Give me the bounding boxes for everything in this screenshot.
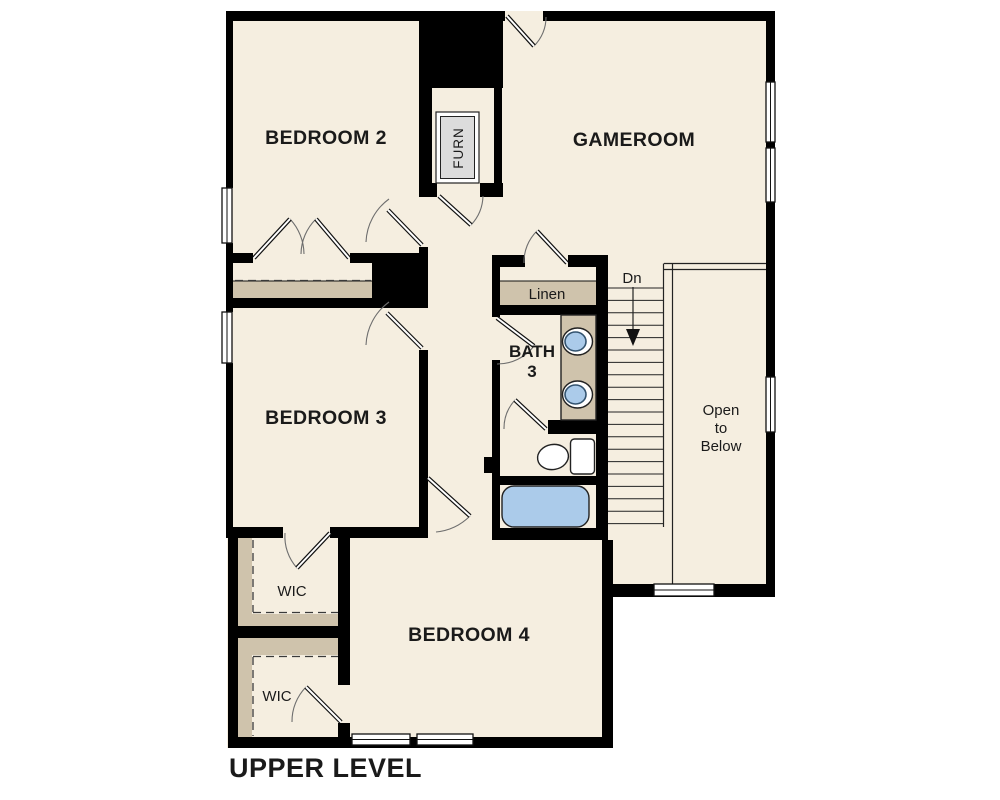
bathtub <box>502 486 589 527</box>
bedroom2-window <box>222 188 232 243</box>
bedroom3-window <box>222 312 232 363</box>
stair-landing-window <box>654 584 714 596</box>
open-to-below-label-line1: Open <box>703 402 740 419</box>
gameroom-window-upper <box>766 82 775 142</box>
bath3-label-line2: 3 <box>527 362 536 381</box>
bedroom4-window-right <box>417 734 473 745</box>
wic-upper-shelf-bottom <box>238 614 338 627</box>
wic-lower-label: WIC <box>262 688 291 705</box>
furnace-unit: FURN <box>436 112 479 183</box>
open-to-below-window <box>766 377 775 432</box>
sink-2 <box>563 381 593 408</box>
bedroom4-window-left <box>352 734 410 745</box>
furnace-label: FURN <box>451 127 466 169</box>
open-to-below-label-line2: to <box>715 420 728 437</box>
linen-label: Linen <box>529 286 566 303</box>
floor-plan-page: FURN BEDROOM 2 GAMEROOM BEDROOM 3 BEDROO… <box>0 0 1000 800</box>
stair-direction-label: Dn <box>622 270 641 287</box>
floor-plan-drawing: FURN BEDROOM 2 GAMEROOM BEDROOM 3 BEDROO… <box>0 0 1000 800</box>
plan-title: UPPER LEVEL <box>229 753 422 783</box>
wic-lower-shelf-top <box>238 638 338 655</box>
wic-upper-shelf-left <box>238 538 252 627</box>
bath3-label-line1: BATH <box>509 342 555 361</box>
sink-1 <box>563 328 593 355</box>
open-to-below-label-line3: Below <box>701 438 742 455</box>
bedroom3-label: BEDROOM 3 <box>265 407 387 429</box>
wic-upper-label: WIC <box>277 583 306 600</box>
bedroom4-label: BEDROOM 4 <box>408 624 530 646</box>
gameroom-label: GAMEROOM <box>573 129 695 151</box>
bedroom2-label: BEDROOM 2 <box>265 127 387 149</box>
bedroom2-closet-shelf <box>233 281 373 298</box>
gameroom-window-lower <box>766 148 775 202</box>
